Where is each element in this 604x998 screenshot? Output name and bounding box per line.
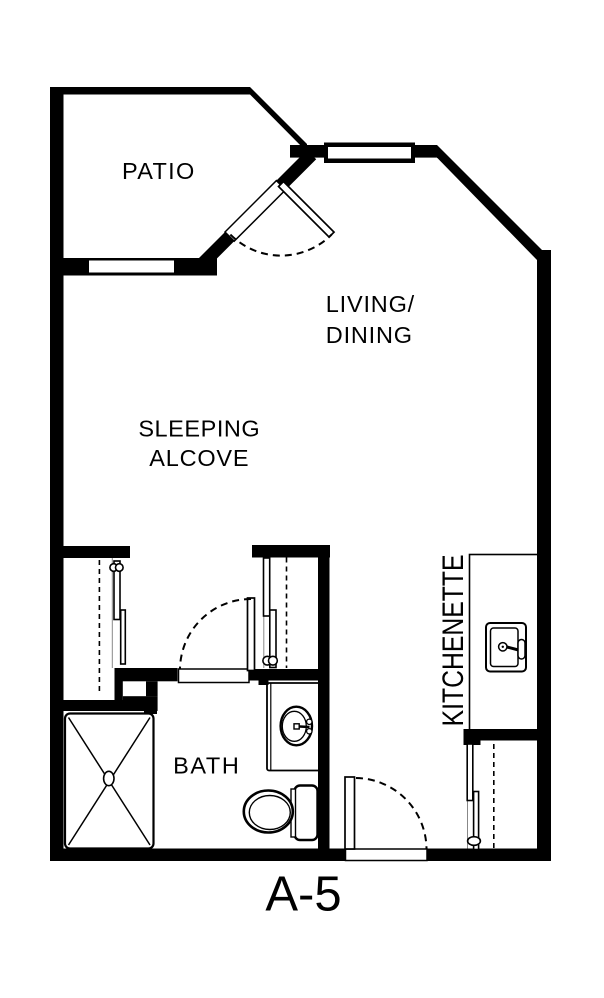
svg-text:BATH: BATH bbox=[173, 753, 240, 779]
svg-text:KITCHENETTE: KITCHENETTE bbox=[436, 555, 470, 727]
svg-text:LIVING/: LIVING/ bbox=[326, 291, 415, 317]
svg-text:SLEEPING: SLEEPING bbox=[138, 416, 260, 442]
svg-text:ALCOVE: ALCOVE bbox=[149, 445, 249, 471]
svg-text:PATIO: PATIO bbox=[122, 158, 196, 184]
svg-text:DINING: DINING bbox=[326, 322, 413, 348]
svg-text:A-5: A-5 bbox=[265, 868, 341, 922]
